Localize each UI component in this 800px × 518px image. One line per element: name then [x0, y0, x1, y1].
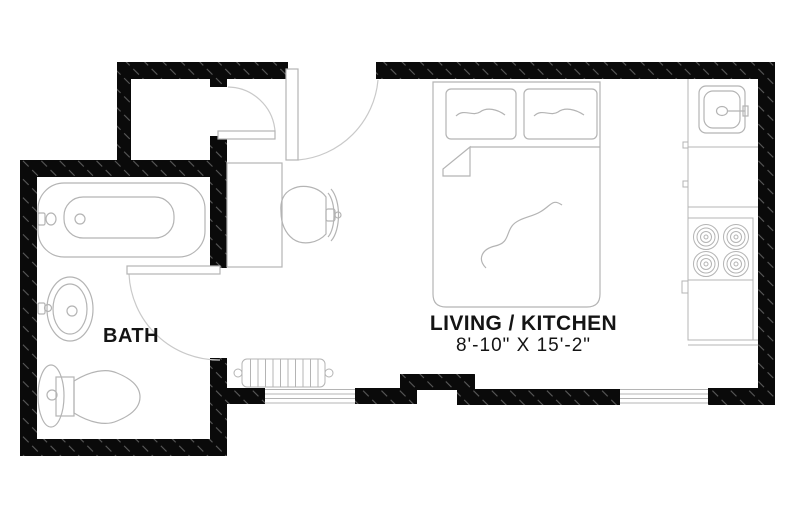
wall-bath-door-stub [210, 358, 227, 456]
wall-living-top [376, 62, 775, 79]
wall-closet-door-stub [210, 79, 227, 87]
wall-bath-top [20, 160, 223, 177]
living-kitchen-dimensions: 8'-10" X 15'-2" [400, 336, 647, 355]
kitchen-sink [699, 86, 748, 133]
wall-bath-right [210, 177, 227, 268]
walls [20, 62, 775, 456]
chair [281, 186, 341, 242]
table [227, 163, 282, 267]
closet-door [218, 87, 275, 139]
wall-bottom-b [355, 388, 417, 404]
bathtub [38, 183, 205, 257]
living-kitchen-label: LIVING / KITCHEN [400, 313, 647, 334]
entry-door [286, 69, 378, 160]
kitchen-counter [682, 79, 758, 345]
wall-bottom-d [708, 388, 773, 405]
burner [694, 225, 719, 250]
burner [724, 225, 749, 250]
wall-bottom-a [227, 388, 265, 404]
pillow-right [524, 89, 597, 139]
wall-bath-left [20, 160, 37, 456]
window-left [265, 390, 355, 404]
wall-bottom-jog [400, 374, 475, 390]
stove [688, 218, 753, 280]
burner [724, 252, 749, 277]
wall-bottom-c [457, 389, 620, 405]
blanket-fold [443, 147, 470, 176]
window-right [620, 390, 708, 404]
bath-label: BATH [103, 326, 159, 346]
wall-right [758, 62, 775, 405]
closet-door-leaf [218, 131, 275, 139]
floor-plan-drawing [0, 0, 800, 518]
toilet [38, 365, 140, 427]
bed-squiggle [481, 202, 562, 268]
pillow-left [446, 89, 516, 139]
wall-bath-bottom [20, 439, 227, 456]
bath-door-leaf [127, 266, 220, 274]
bathroom-sink [38, 277, 93, 341]
entry-door-leaf [286, 69, 298, 160]
floor-plan: BATH LIVING / KITCHEN 8'-10" X 15'-2" [0, 0, 800, 518]
wall-top-left [117, 62, 288, 79]
wall-vestibule-left [117, 62, 131, 162]
burner [694, 252, 719, 277]
radiator [234, 359, 333, 387]
bed [433, 82, 600, 307]
